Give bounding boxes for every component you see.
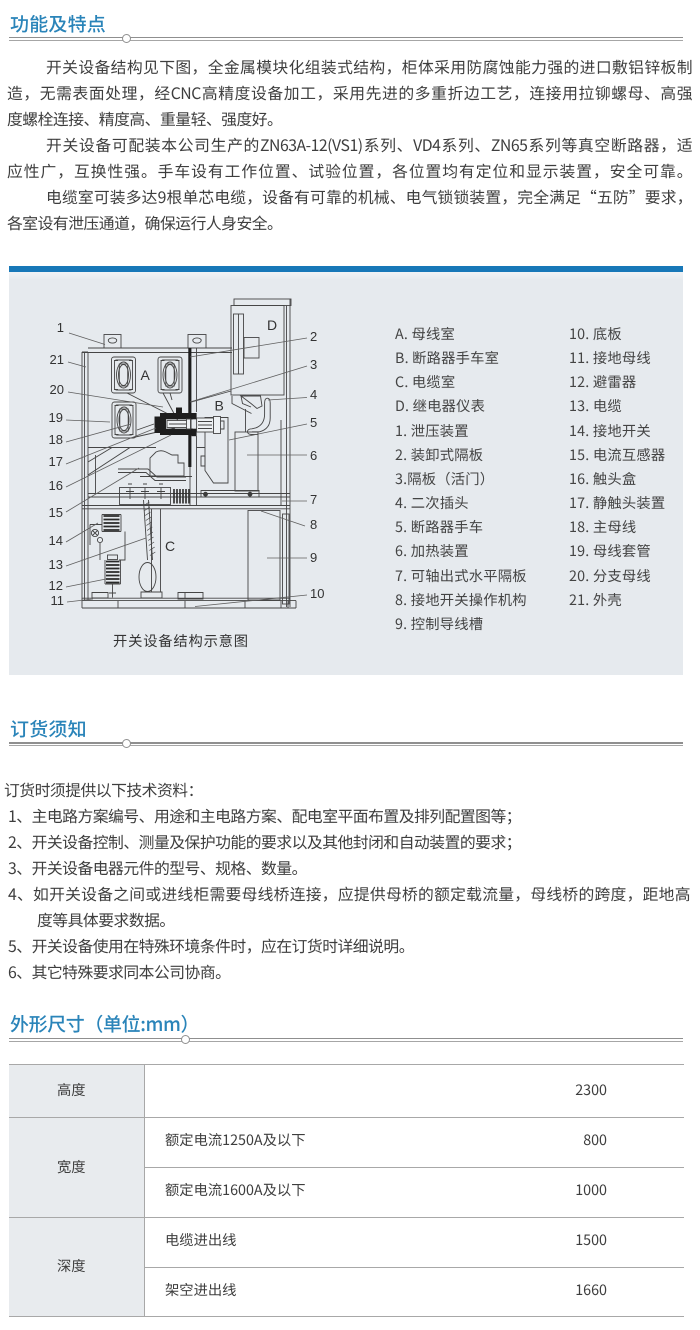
svg-text:15: 15 <box>49 505 63 520</box>
svg-text:B: B <box>215 398 224 414</box>
svg-text:13: 13 <box>49 557 63 572</box>
svg-text:12: 12 <box>49 578 63 593</box>
svg-text:16: 16 <box>49 478 63 493</box>
svg-text:1: 1 <box>57 320 64 335</box>
svg-text:9: 9 <box>310 550 317 565</box>
svg-text:20: 20 <box>50 382 64 397</box>
svg-text:18: 18 <box>49 432 63 447</box>
svg-text:D: D <box>267 317 277 333</box>
svg-text:6: 6 <box>310 448 317 463</box>
svg-text:7: 7 <box>310 492 317 507</box>
svg-text:19: 19 <box>49 410 63 425</box>
svg-text:10: 10 <box>310 586 324 601</box>
svg-text:8: 8 <box>310 517 317 532</box>
svg-text:5: 5 <box>310 415 317 430</box>
svg-text:2: 2 <box>310 329 317 344</box>
svg-text:4: 4 <box>310 387 317 402</box>
svg-text:11: 11 <box>51 593 65 608</box>
svg-text:14: 14 <box>49 533 63 548</box>
svg-text:21: 21 <box>50 352 64 367</box>
svg-text:17: 17 <box>49 454 63 469</box>
svg-text:A: A <box>141 367 151 383</box>
svg-text:3: 3 <box>310 357 317 372</box>
svg-text:C: C <box>165 538 175 554</box>
